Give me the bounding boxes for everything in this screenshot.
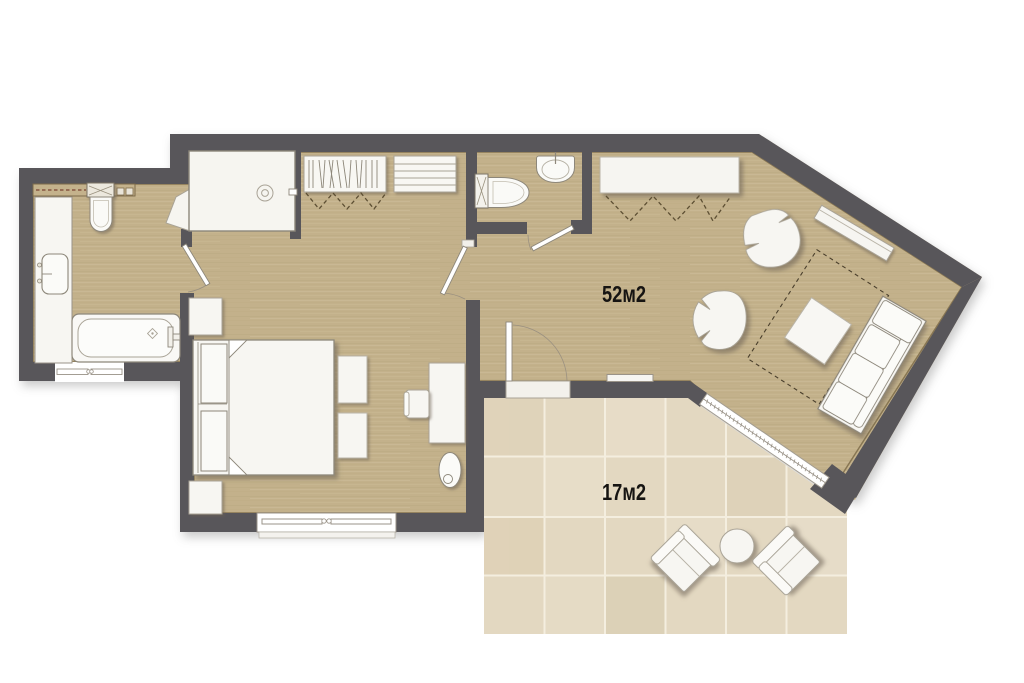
svg-text:17м2: 17м2 <box>602 479 646 505</box>
svg-text:52м2: 52м2 <box>602 281 646 307</box>
